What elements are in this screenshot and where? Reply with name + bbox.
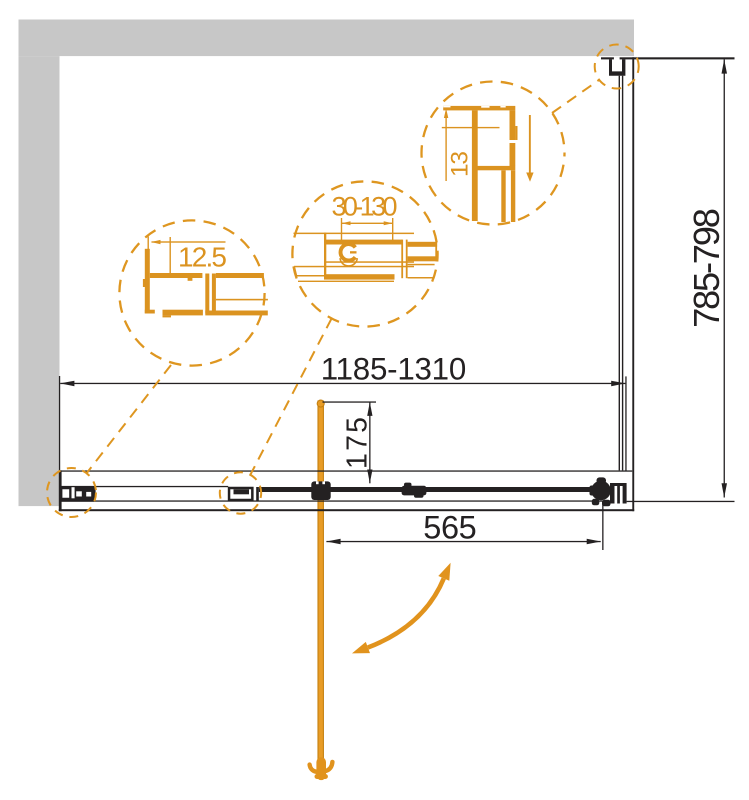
svg-text:13: 13	[447, 151, 474, 177]
svg-text:565: 565	[423, 510, 477, 546]
svg-text:175: 175	[342, 417, 374, 469]
svg-text:30-130: 30-130	[332, 192, 398, 222]
svg-text:12.5: 12.5	[178, 241, 227, 272]
svg-text:1185-1310: 1185-1310	[321, 352, 467, 387]
svg-text:785-798: 785-798	[686, 208, 727, 328]
